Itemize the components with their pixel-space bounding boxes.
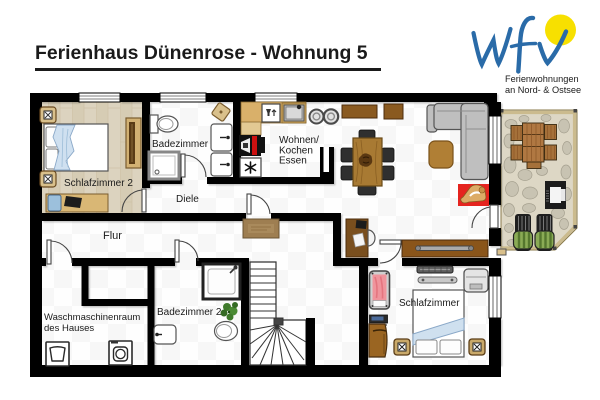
svg-text:Diele: Diele [176,194,199,205]
svg-text:des Hauses: des Hauses [44,323,94,334]
svg-text:Schlafzimmer 2: Schlafzimmer 2 [64,178,133,189]
svg-text:Badezimmer 2: Badezimmer 2 [157,307,222,318]
svg-text:Waschmaschinenraum: Waschmaschinenraum [44,312,140,323]
svg-text:Ferienwohnungen: Ferienwohnungen [505,74,579,84]
svg-text:an Nord- & Ostsee: an Nord- & Ostsee [505,85,581,95]
svg-text:Badezimmer: Badezimmer [152,139,209,150]
svg-text:Schlafzimmer: Schlafzimmer [399,298,460,309]
svg-text:Flur: Flur [103,230,122,242]
svg-text:Essen: Essen [279,156,307,167]
